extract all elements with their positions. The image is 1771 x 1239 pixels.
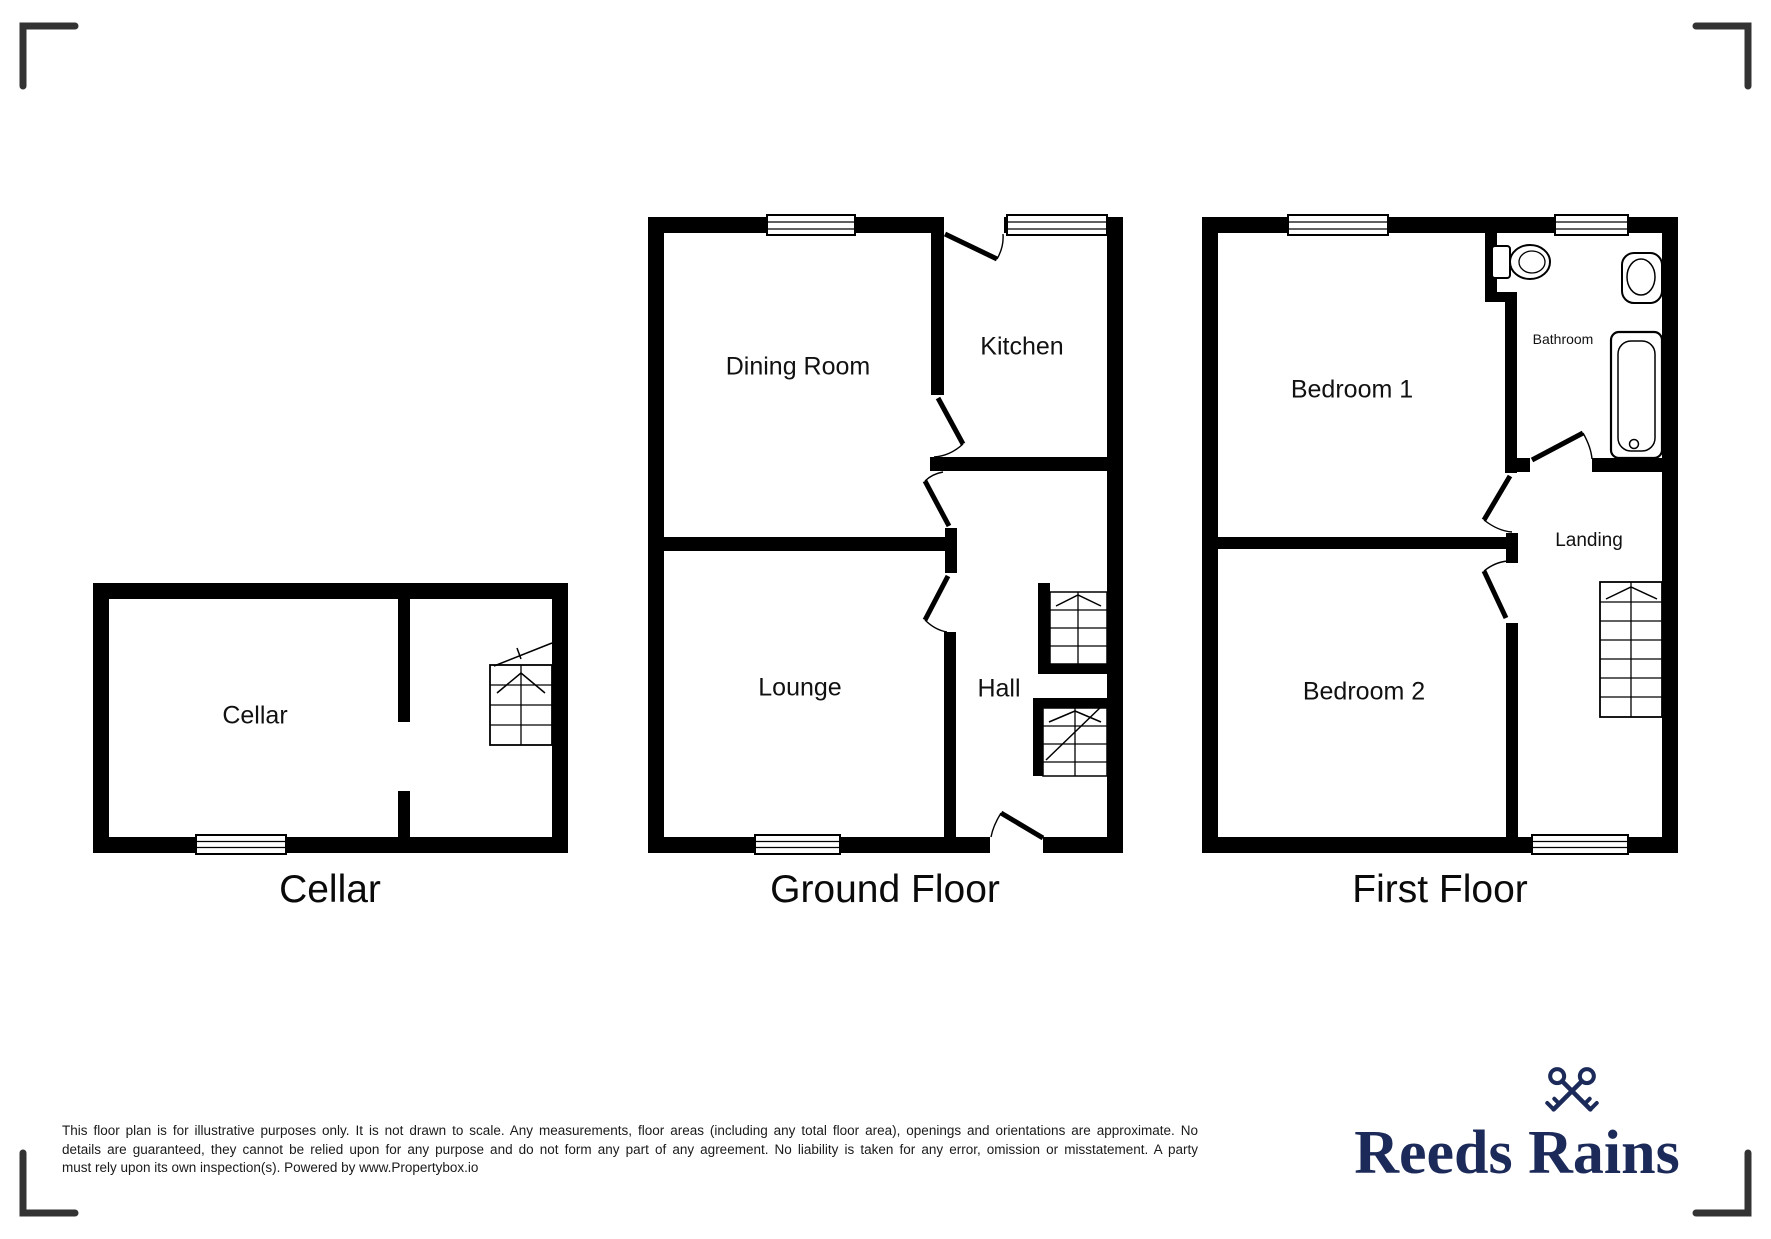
crossed-keys-icon (1547, 1065, 1596, 1114)
reeds-rains-logo-text: Reeds Rains (1341, 1118, 1693, 1189)
window-icon (767, 215, 855, 235)
caption-ground-floor: Ground Floor (770, 868, 1000, 912)
room-label-hall: Hall (977, 675, 1020, 704)
floorplan-drawing (0, 0, 1771, 1239)
door-swing-icon (925, 472, 949, 526)
window-icon (1532, 835, 1628, 854)
door-swing-icon (1532, 433, 1592, 460)
disclaimer-line-3: must rely upon its own inspection(s). Po… (62, 1159, 1198, 1178)
door-swing-icon (944, 217, 1004, 259)
room-label-lounge: Lounge (758, 674, 841, 703)
stairs-icon (490, 643, 552, 745)
disclaimer-line-1: This floor plan is for illustrative purp… (62, 1122, 1198, 1141)
stairs-icon (1600, 582, 1662, 717)
stairs-icon (1043, 703, 1107, 776)
door-swing-icon (934, 398, 963, 457)
caption-cellar: Cellar (279, 868, 381, 912)
door-swing-icon (925, 576, 948, 632)
room-label-bedroom-2: Bedroom 2 (1303, 678, 1425, 707)
corner-bracket-bottom-right (1696, 1153, 1748, 1213)
room-label-cellar: Cellar (222, 702, 287, 731)
room-label-landing: Landing (1555, 530, 1623, 552)
window-icon (755, 835, 840, 854)
disclaimer-text: This floor plan is for illustrative purp… (62, 1122, 1198, 1178)
sink-icon (1622, 253, 1662, 303)
caption-first-floor: First Floor (1352, 868, 1528, 912)
window-icon (1555, 215, 1628, 235)
ground-floor-plan (648, 215, 1123, 854)
door-swing-icon (1484, 476, 1512, 532)
room-label-bathroom: Bathroom (1533, 331, 1594, 347)
floorplan-page: Cellar Dining Room Kitchen Lounge Hall B… (0, 0, 1771, 1239)
door-swing-icon (990, 813, 1043, 853)
corner-bracket-top-right (1696, 26, 1748, 86)
disclaimer-line-2: details are guaranteed, they cannot be r… (62, 1141, 1198, 1160)
door-swing-icon (1484, 561, 1508, 618)
window-icon (1288, 215, 1388, 235)
room-label-dining-room: Dining Room (726, 353, 871, 382)
window-icon (196, 835, 286, 854)
corner-bracket-top-left (23, 26, 75, 86)
room-label-bedroom-1: Bedroom 1 (1291, 376, 1413, 405)
room-label-kitchen: Kitchen (980, 333, 1063, 362)
stairs-icon (1050, 592, 1107, 664)
cellar-plan (93, 583, 568, 854)
toilet-icon (1492, 245, 1550, 279)
corner-brackets (23, 26, 1748, 1213)
bathtub-icon (1611, 332, 1662, 458)
window-icon (1007, 215, 1107, 235)
